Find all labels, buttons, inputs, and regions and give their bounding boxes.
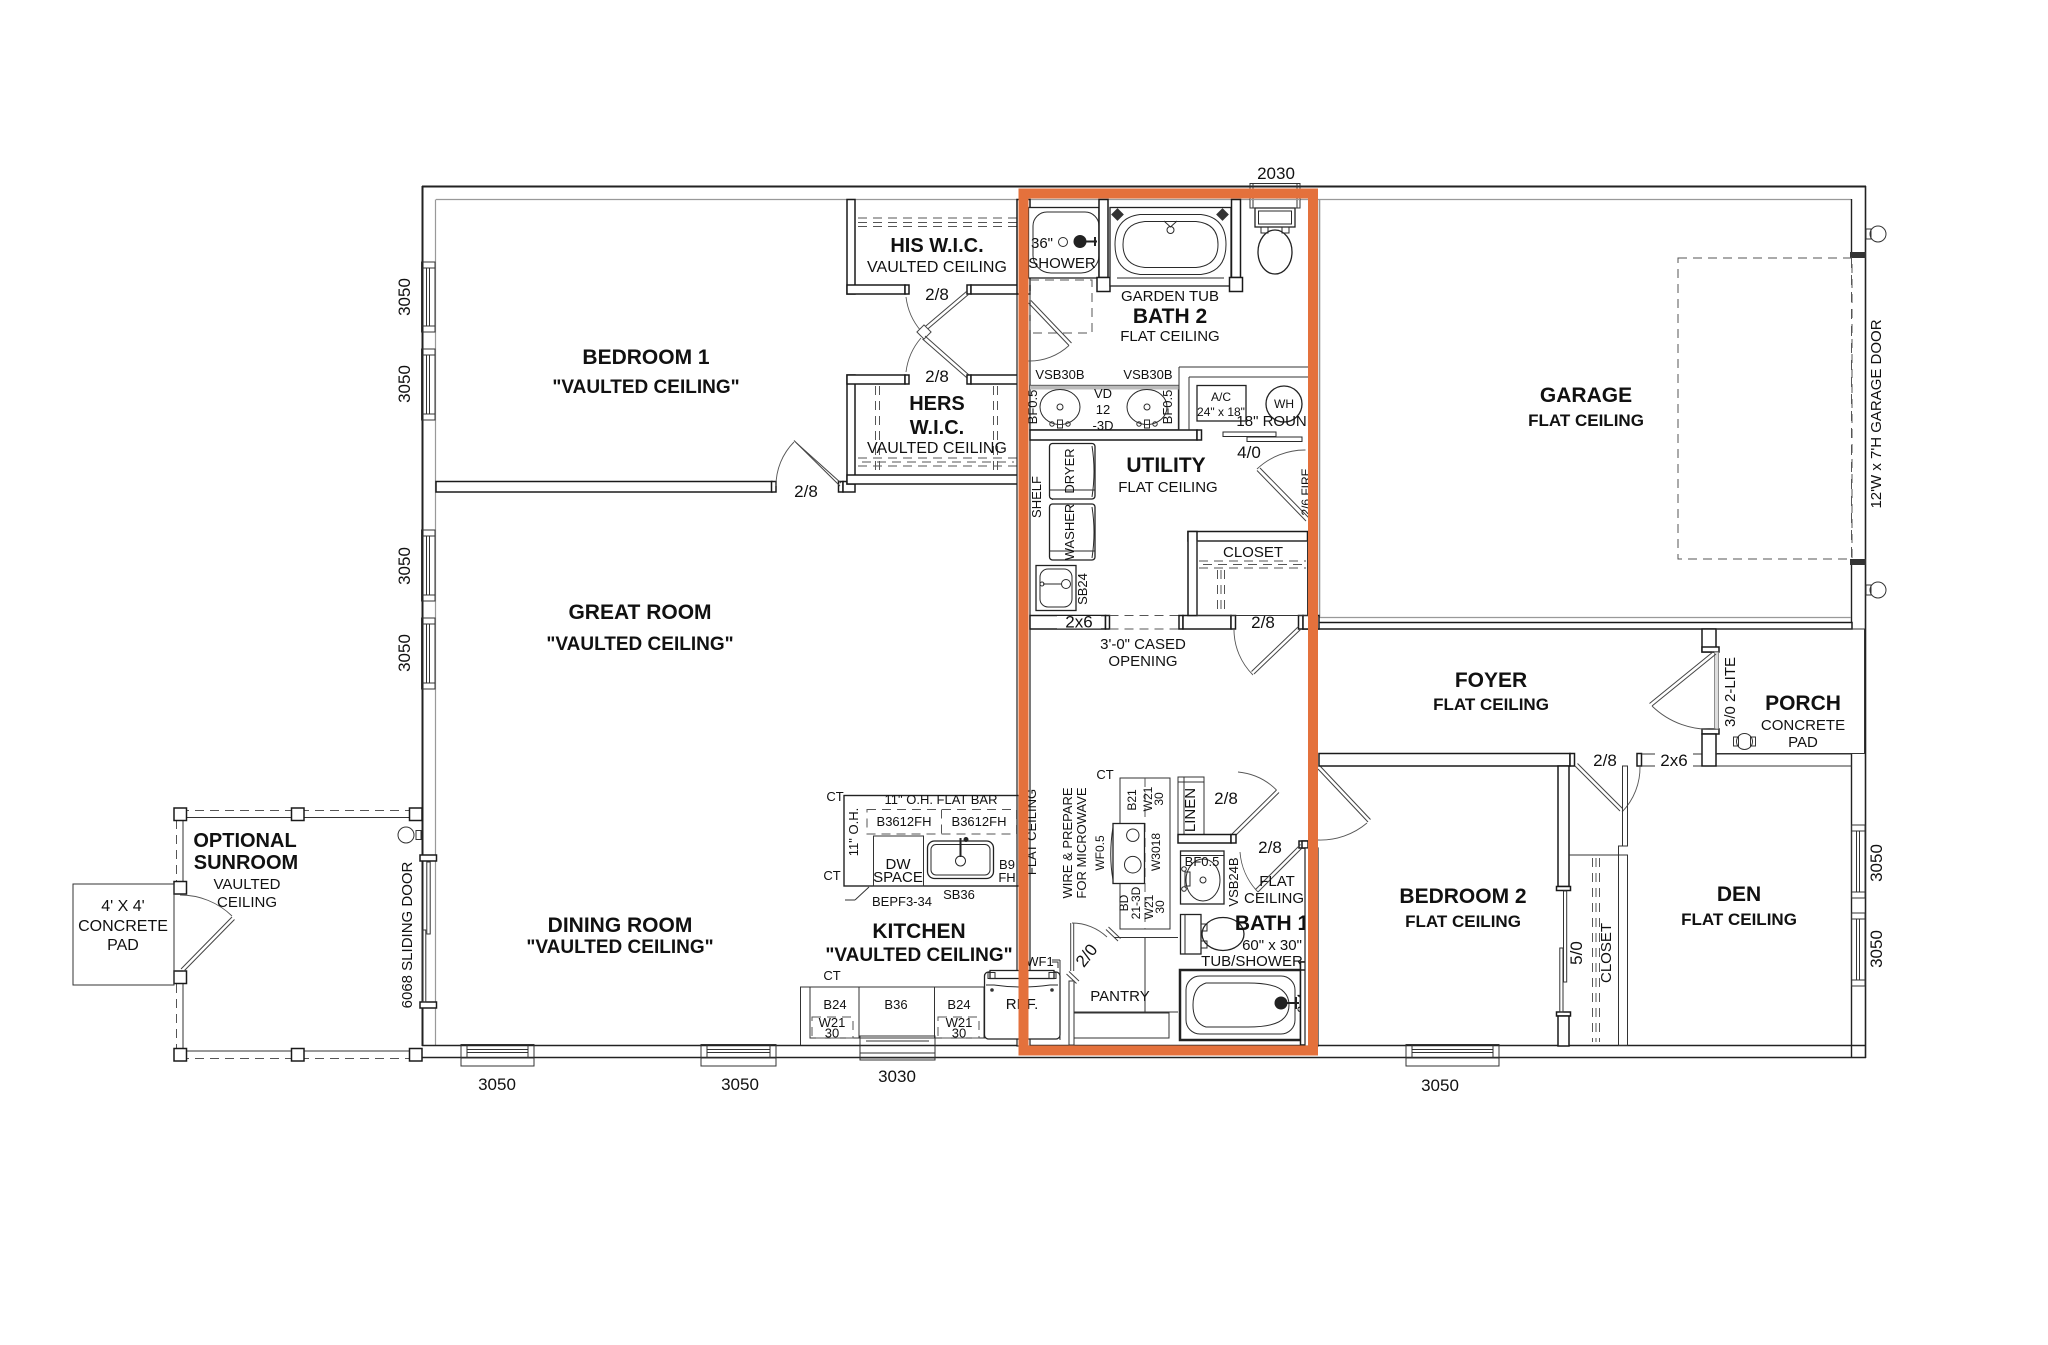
svg-text:"VAULTED CEILING": "VAULTED CEILING" [546, 634, 733, 655]
svg-text:CONCRETE: CONCRETE [1761, 717, 1845, 734]
svg-text:GARDEN TUB: GARDEN TUB [1121, 288, 1219, 305]
svg-text:CLOSET: CLOSET [1223, 544, 1283, 561]
svg-text:30: 30 [1152, 792, 1166, 806]
svg-text:B3612FH: B3612FH [952, 814, 1007, 829]
svg-text:WASHER: WASHER [1062, 504, 1077, 561]
svg-text:A/C: A/C [1211, 390, 1231, 404]
svg-text:W.I.C.: W.I.C. [910, 417, 964, 439]
svg-text:11" O.H.: 11" O.H. [846, 808, 861, 856]
svg-text:BEDROOM 2: BEDROOM 2 [1399, 885, 1526, 908]
svg-text:3050: 3050 [721, 1075, 759, 1094]
svg-text:B36: B36 [884, 997, 907, 1012]
svg-text:21-3D: 21-3D [1129, 886, 1143, 919]
svg-text:4/0: 4/0 [1237, 443, 1261, 462]
svg-text:FLAT: FLAT [1259, 873, 1295, 890]
svg-text:60" x 30": 60" x 30" [1242, 937, 1302, 954]
svg-text:VAULTED: VAULTED [214, 876, 281, 893]
svg-text:CT: CT [823, 868, 840, 883]
svg-text:HIS W.I.C.: HIS W.I.C. [890, 235, 983, 257]
svg-text:SUNROOM: SUNROOM [194, 852, 298, 874]
svg-text:BF0.5: BF0.5 [1185, 854, 1220, 869]
svg-text:OPENING: OPENING [1108, 653, 1177, 670]
svg-text:WF0.5: WF0.5 [1093, 835, 1107, 871]
svg-text:3050: 3050 [395, 365, 414, 403]
svg-text:BEDROOM 1: BEDROOM 1 [582, 346, 710, 369]
svg-text:2/8: 2/8 [1251, 613, 1275, 632]
svg-text:WH: WH [1274, 397, 1294, 411]
svg-text:CONCRETE: CONCRETE [78, 918, 168, 935]
svg-text:BEPF3-34: BEPF3-34 [872, 894, 932, 909]
svg-text:HERS: HERS [909, 393, 965, 415]
svg-text:3050: 3050 [1867, 844, 1886, 882]
svg-text:SHELF: SHELF [1029, 476, 1044, 518]
svg-text:3'-0" CASED: 3'-0" CASED [1100, 636, 1186, 653]
svg-text:3/0 2-LITE: 3/0 2-LITE [1722, 657, 1739, 727]
svg-text:SPACE: SPACE [873, 869, 923, 886]
svg-text:SB24: SB24 [1075, 573, 1090, 605]
svg-text:UTILITY: UTILITY [1126, 454, 1205, 477]
svg-text:PANTRY: PANTRY [1090, 988, 1149, 1005]
svg-text:VSB30B: VSB30B [1123, 367, 1172, 382]
svg-text:12'W x 7'H GARAGE DOOR: 12'W x 7'H GARAGE DOOR [1868, 319, 1885, 508]
svg-text:CEILING: CEILING [217, 894, 277, 911]
svg-text:VAULTED CEILING: VAULTED CEILING [867, 440, 1007, 457]
svg-text:PAD: PAD [1788, 734, 1818, 751]
svg-text:CEILING: CEILING [1244, 890, 1304, 907]
svg-text:DINING ROOM: DINING ROOM [548, 914, 693, 937]
svg-text:3030: 3030 [878, 1067, 916, 1086]
svg-text:VAULTED CEILING: VAULTED CEILING [867, 259, 1007, 276]
svg-text:VSB24B: VSB24B [1226, 857, 1241, 906]
svg-text:FLAT CEILING: FLAT CEILING [1433, 695, 1549, 714]
svg-text:B21: B21 [1125, 789, 1139, 811]
svg-text:PORCH: PORCH [1765, 692, 1841, 715]
svg-text:GREAT ROOM: GREAT ROOM [568, 601, 711, 624]
svg-text:12: 12 [1096, 402, 1110, 417]
svg-text:BATH 2: BATH 2 [1133, 305, 1207, 328]
svg-text:2030: 2030 [1257, 164, 1295, 183]
svg-text:3050: 3050 [395, 547, 414, 585]
svg-text:3050: 3050 [1867, 930, 1886, 968]
svg-text:WIRE & PREPARE: WIRE & PREPARE [1060, 787, 1075, 898]
svg-text:VSB30B: VSB30B [1035, 367, 1084, 382]
svg-text:VD: VD [1094, 386, 1112, 401]
svg-text:FLAT CEILING: FLAT CEILING [1120, 328, 1219, 345]
svg-text:2/8: 2/8 [1258, 838, 1282, 857]
svg-text:CLOSET: CLOSET [1598, 923, 1615, 983]
svg-text:"VAULTED CEILING": "VAULTED CEILING" [552, 377, 739, 398]
svg-text:3050: 3050 [478, 1075, 516, 1094]
svg-text:PAD: PAD [107, 937, 139, 954]
svg-text:5/0: 5/0 [1567, 941, 1586, 965]
svg-text:3050: 3050 [395, 278, 414, 316]
svg-text:GARAGE: GARAGE [1540, 384, 1632, 407]
svg-text:2/8: 2/8 [1214, 789, 1238, 808]
svg-text:B3612FH: B3612FH [877, 814, 932, 829]
svg-text:TUB/SHOWER: TUB/SHOWER [1201, 953, 1303, 970]
svg-text:OPTIONAL: OPTIONAL [193, 830, 296, 852]
svg-text:2x6: 2x6 [1065, 613, 1092, 632]
svg-text:WF1: WF1 [1026, 954, 1053, 969]
svg-text:30: 30 [825, 1026, 839, 1041]
svg-text:LINEN: LINEN [1182, 788, 1199, 832]
svg-text:2/8: 2/8 [1593, 751, 1617, 770]
svg-text:FLAT CEILING: FLAT CEILING [1118, 479, 1217, 496]
svg-text:FOR MICROWAVE: FOR MICROWAVE [1074, 787, 1089, 899]
svg-text:3050: 3050 [395, 634, 414, 672]
svg-text:30: 30 [1153, 900, 1167, 914]
svg-text:FLAT CEILING: FLAT CEILING [1681, 910, 1797, 929]
svg-text:2/8: 2/8 [794, 482, 818, 501]
svg-text:W3018: W3018 [1149, 833, 1163, 871]
svg-text:SB36: SB36 [943, 887, 975, 902]
svg-text:CT: CT [823, 968, 840, 983]
svg-text:FLAT CEILING: FLAT CEILING [1405, 912, 1521, 931]
svg-text:30: 30 [952, 1026, 966, 1041]
svg-text:BF0.5: BF0.5 [1160, 390, 1175, 425]
svg-text:DRYER: DRYER [1062, 448, 1077, 493]
svg-text:18" ROUND: 18" ROUND [1236, 413, 1317, 430]
svg-text:DEN: DEN [1717, 883, 1761, 906]
svg-text:36": 36" [1031, 235, 1053, 252]
svg-text:2x6: 2x6 [1660, 751, 1687, 770]
svg-text:B24: B24 [823, 997, 846, 1012]
svg-text:4' X 4': 4' X 4' [101, 898, 144, 915]
svg-text:"VAULTED CEILING": "VAULTED CEILING" [825, 945, 1012, 966]
svg-text:FH: FH [998, 870, 1015, 885]
svg-text:CT: CT [1096, 767, 1113, 782]
svg-text:CT: CT [826, 789, 843, 804]
svg-text:KITCHEN: KITCHEN [872, 920, 965, 943]
svg-text:11" O.H. FLAT BAR: 11" O.H. FLAT BAR [885, 792, 998, 807]
svg-text:2/8: 2/8 [925, 285, 949, 304]
svg-text:2/8: 2/8 [925, 367, 949, 386]
svg-text:FOYER: FOYER [1455, 669, 1527, 692]
svg-text:"VAULTED CEILING": "VAULTED CEILING" [526, 937, 713, 958]
svg-text:3050: 3050 [1421, 1076, 1459, 1095]
svg-text:BATH 1: BATH 1 [1235, 912, 1310, 935]
svg-text:B24: B24 [947, 997, 970, 1012]
svg-text:SHOWER: SHOWER [1028, 255, 1096, 272]
svg-text:6068 SLIDING DOOR: 6068 SLIDING DOOR [399, 861, 416, 1008]
svg-text:FLAT CEILING: FLAT CEILING [1528, 411, 1644, 430]
